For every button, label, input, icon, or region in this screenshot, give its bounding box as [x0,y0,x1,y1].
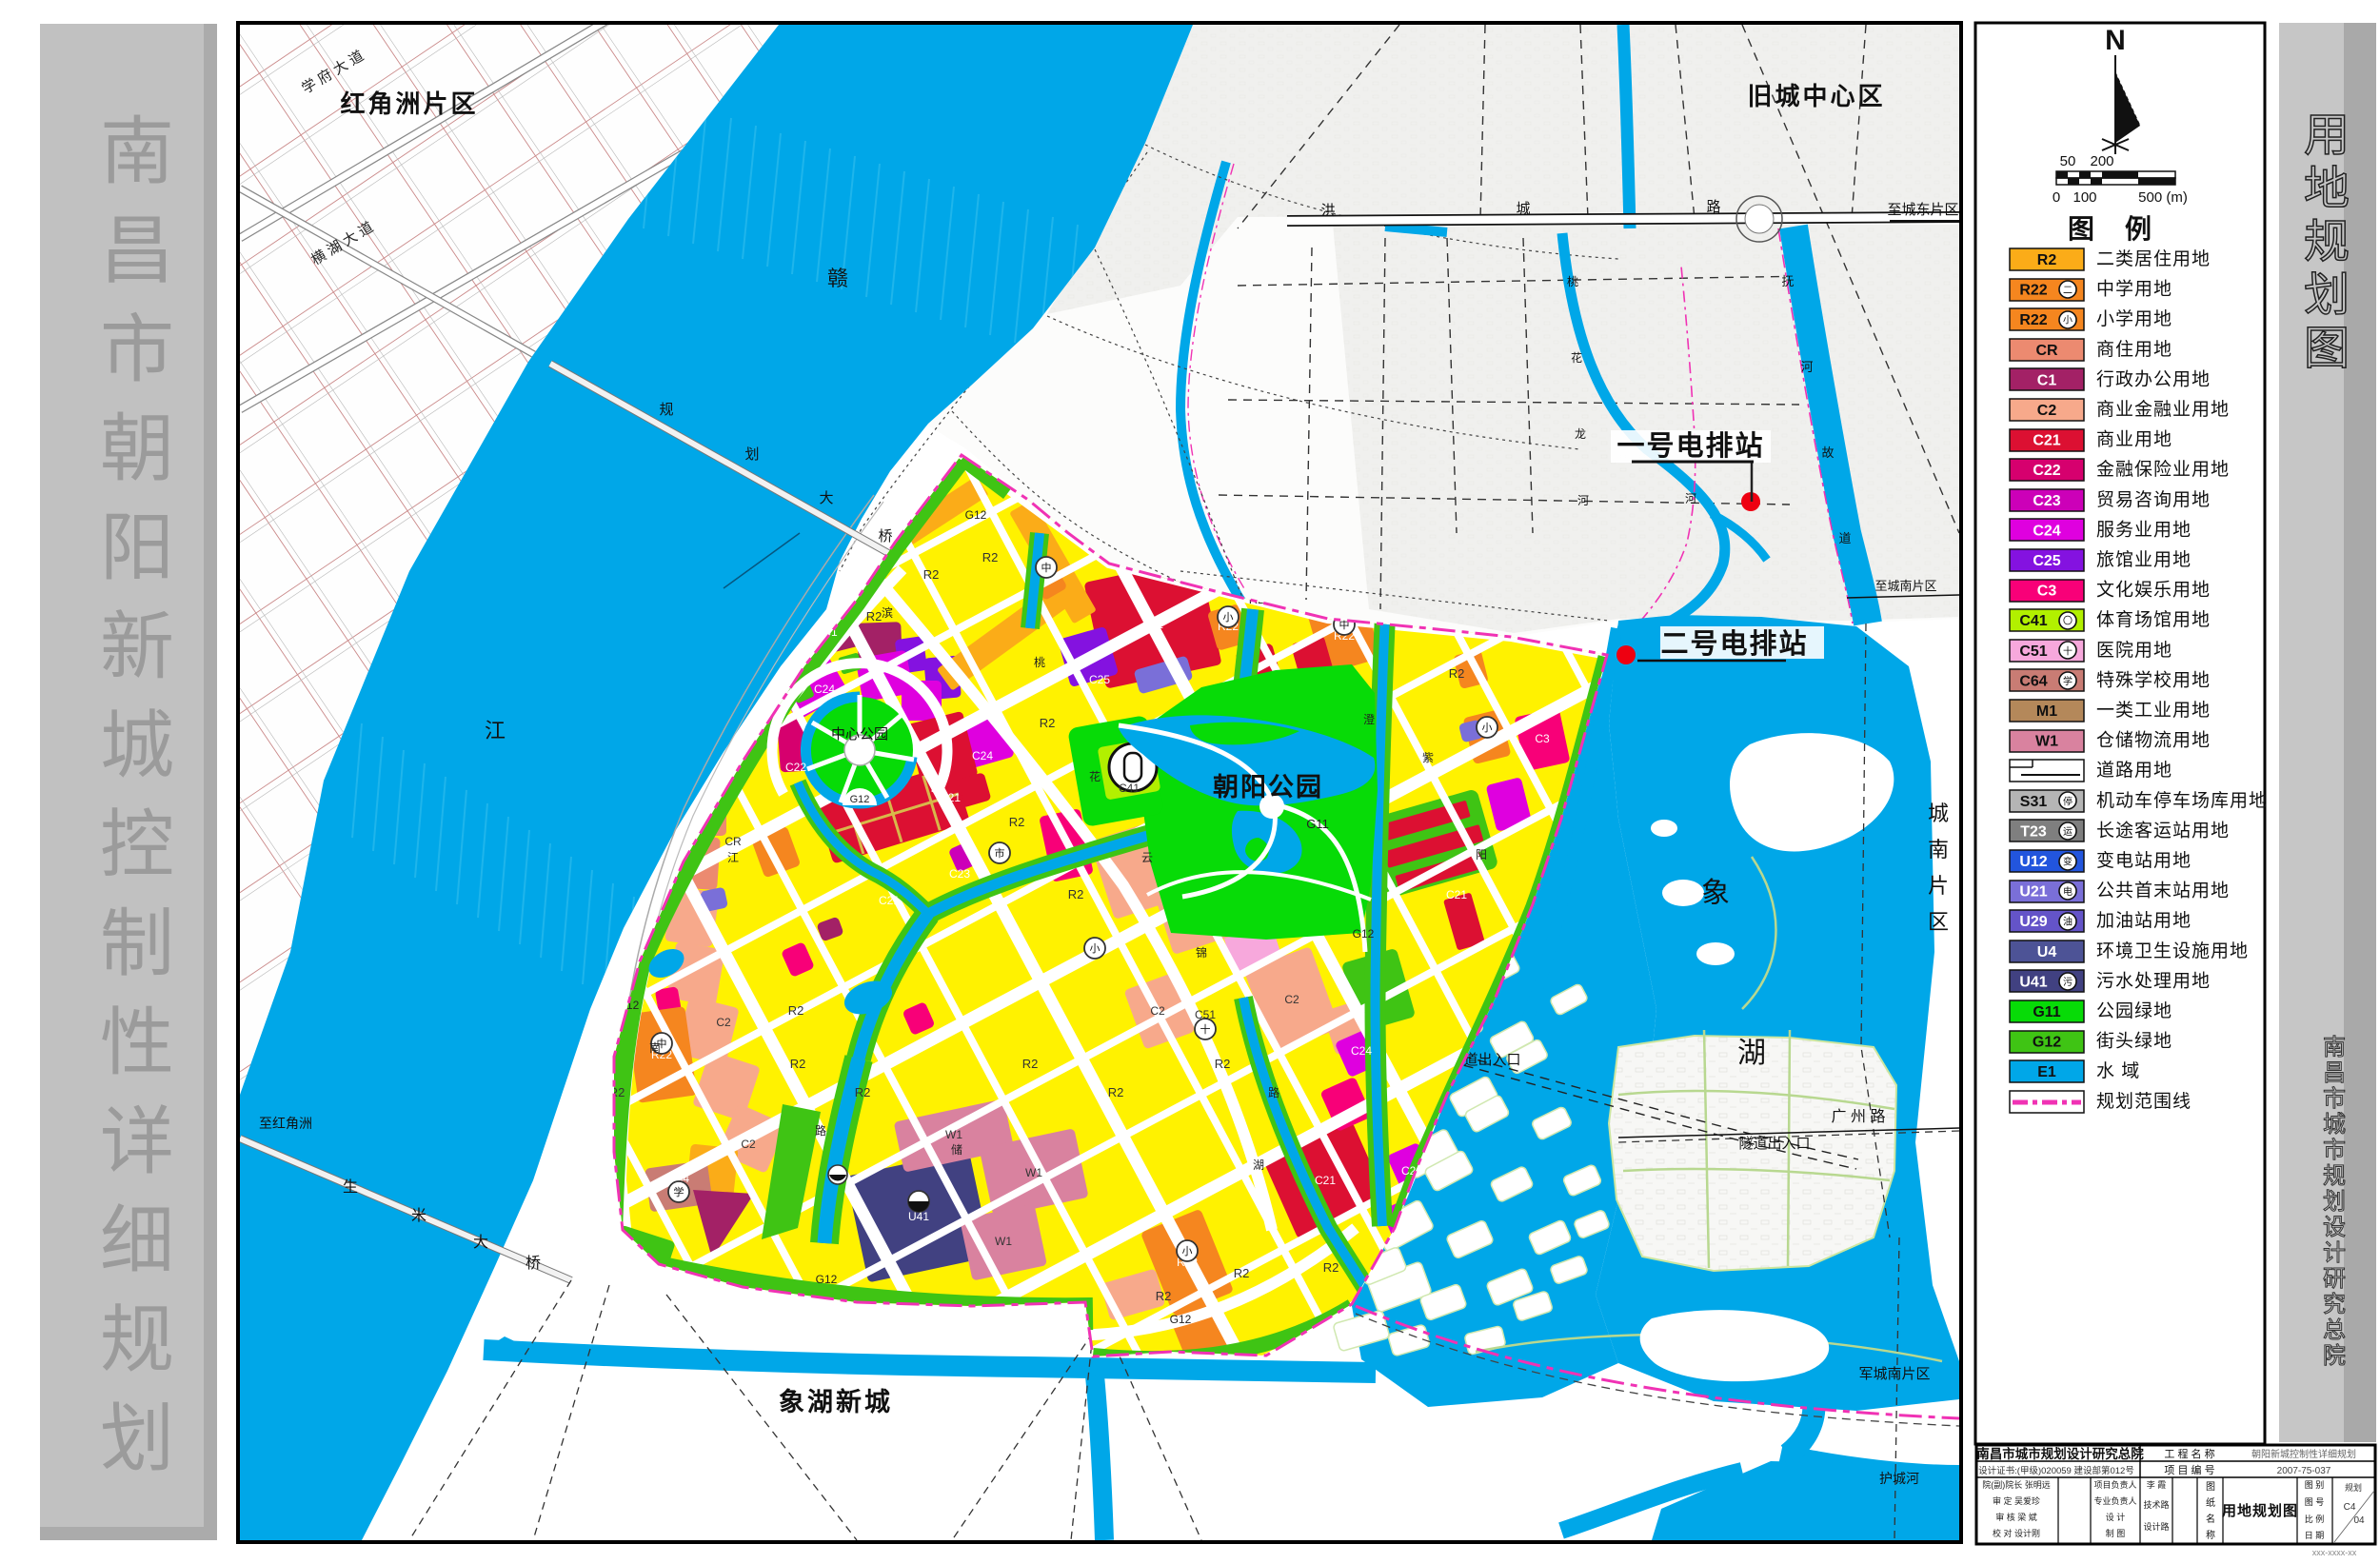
svg-text:滨: 滨 [882,605,893,620]
svg-text:专业负责人: 专业负责人 [2093,1495,2136,1506]
svg-text:W1: W1 [2035,734,2058,750]
svg-text:C41: C41 [1119,782,1140,795]
svg-text:污水处理用地: 污水处理用地 [2096,970,2211,991]
svg-text:院(副)院长 张明远: 院(副)院长 张明远 [1982,1479,2051,1490]
svg-text:澄: 澄 [1363,712,1375,726]
svg-text:大: 大 [473,1234,488,1251]
svg-text:R2: R2 [982,550,999,564]
svg-text:规划范围线: 规划范围线 [2096,1091,2192,1112]
svg-text:R22: R22 [2019,312,2047,328]
svg-text:G11: G11 [2033,1004,2060,1020]
svg-text:C64: C64 [2019,673,2047,689]
svg-text:规: 规 [100,1297,174,1381]
svg-text:C21: C21 [1315,1174,1336,1187]
svg-text:朝: 朝 [100,406,174,490]
svg-text:R2: R2 [1009,815,1025,829]
svg-text:片: 片 [1928,874,1949,898]
svg-text:南: 南 [2323,1035,2346,1060]
svg-text:性: 性 [100,1000,174,1084]
svg-text:电: 电 [2063,885,2073,898]
svg-text:红角洲片区: 红角洲片区 [340,89,478,118]
svg-text:故: 故 [1821,445,1834,460]
svg-text:路: 路 [1706,199,1720,215]
svg-text:校 对 设计刚: 校 对 设计刚 [1993,1528,2040,1538]
svg-text:二: 二 [2063,286,2073,296]
svg-text:2007-75-037: 2007-75-037 [2277,1466,2331,1476]
svg-text:C2: C2 [1150,1004,1165,1018]
svg-text:十: 十 [1200,1022,1211,1036]
svg-text:南: 南 [1928,838,1949,861]
svg-text:贸易咨询用地: 贸易咨询用地 [2096,489,2211,510]
svg-text:C1: C1 [2037,372,2057,388]
svg-text:C51: C51 [2019,643,2047,660]
svg-text:抚: 抚 [1781,274,1794,288]
svg-text:G12: G12 [1170,1313,1192,1326]
svg-text:行政办公用地: 行政办公用地 [2096,368,2211,389]
svg-text:图: 图 [2304,324,2350,374]
svg-text:桥: 桥 [878,528,892,544]
svg-text:规: 规 [2323,1163,2346,1189]
svg-text:划: 划 [2304,270,2350,321]
svg-text:04: 04 [2353,1515,2365,1526]
svg-text:G11: G11 [1306,817,1329,831]
svg-text:R22: R22 [2019,283,2047,299]
svg-text:M1: M1 [2036,703,2057,720]
svg-text:R2: R2 [1215,1057,1231,1071]
svg-text:C21: C21 [1142,618,1163,631]
svg-text:学: 学 [674,1185,684,1198]
svg-text:商业金融业用地: 商业金融业用地 [2096,399,2230,420]
svg-text:C22: C22 [785,761,806,774]
svg-text:规: 规 [659,402,673,418]
svg-text:隧道出入口: 隧道出入口 [1738,1136,1810,1152]
svg-text:锦: 锦 [1196,946,1207,960]
svg-text:湖: 湖 [1737,1038,1766,1069]
svg-text:制 图: 制 图 [2106,1528,2126,1538]
svg-text:护城河: 护城河 [1879,1471,1919,1486]
svg-text:U21: U21 [2019,884,2047,901]
svg-text:C2: C2 [1284,993,1299,1006]
svg-text:阳: 阳 [100,505,174,589]
svg-text:C24: C24 [1351,1044,1372,1058]
svg-text:C24: C24 [2033,523,2060,539]
svg-text:细: 细 [100,1198,174,1282]
svg-text:R2: R2 [1234,1266,1250,1280]
svg-text:二类居住用地: 二类居住用地 [2096,248,2211,269]
svg-text:桃: 桃 [1034,655,1045,669]
svg-text:服务业用地: 服务业用地 [2096,519,2192,540]
svg-text:设计路: 设计路 [2143,1521,2169,1532]
svg-text:U12: U12 [2019,854,2047,870]
svg-text:计: 计 [2323,1240,2346,1266]
svg-text:图 别: 图 别 [2305,1480,2325,1490]
svg-text:公园绿地: 公园绿地 [2096,1000,2172,1021]
svg-text:R2: R2 [866,609,883,624]
svg-text:设: 设 [2323,1215,2346,1240]
svg-text:十: 十 [2063,644,2073,657]
svg-text:龙: 龙 [1575,427,1586,441]
svg-text:市: 市 [2323,1086,2346,1112]
svg-text:一号电排站: 一号电排站 [1616,430,1764,462]
svg-text:U29: U29 [2019,914,2047,930]
svg-text:桥: 桥 [526,1255,541,1272]
svg-text:米: 米 [411,1207,426,1224]
svg-text:路: 路 [815,1123,826,1138]
svg-text:例: 例 [2125,214,2152,244]
svg-text:图: 图 [2068,214,2094,244]
svg-text:日 期: 日 期 [2305,1531,2325,1540]
svg-text:洪: 洪 [1320,203,1335,219]
svg-text:南昌市城市规划设计研究总院: 南昌市城市规划设计研究总院 [1976,1446,2144,1461]
svg-text:阳: 阳 [1476,848,1487,861]
svg-text:T23: T23 [2020,823,2047,840]
svg-text:C2: C2 [716,1016,731,1029]
svg-text:江: 江 [485,719,506,742]
svg-text:R2: R2 [2037,252,2057,268]
svg-text:0: 0 [2053,189,2060,206]
svg-text:R2: R2 [1323,1260,1339,1275]
svg-text:用地规划图: 用地规划图 [2222,1502,2298,1519]
svg-text:总: 总 [2323,1317,2346,1343]
svg-text:地: 地 [2304,164,2350,214]
svg-text:用: 用 [2304,110,2350,161]
svg-text:新: 新 [100,604,174,688]
svg-text:C23: C23 [949,867,970,881]
svg-text:象: 象 [1701,878,1730,909]
svg-text:研: 研 [2323,1266,2346,1292]
svg-text:〇: 〇 [2063,616,2073,627]
svg-text:道路用地: 道路用地 [2096,760,2172,781]
svg-text:旅馆业用地: 旅馆业用地 [2096,549,2192,570]
svg-text:C4: C4 [2344,1502,2356,1513]
svg-text:划: 划 [100,1396,174,1480]
svg-text:南: 南 [649,1040,661,1055]
svg-text:C25: C25 [2033,553,2060,569]
svg-text:变电站用地: 变电站用地 [2096,850,2192,871]
svg-text:赣: 赣 [827,267,848,290]
svg-text:城: 城 [2323,1112,2346,1138]
svg-text:C41: C41 [2019,613,2047,629]
svg-text:道: 道 [1838,531,1851,545]
svg-text:小: 小 [1482,722,1493,734]
svg-text:C21: C21 [1446,888,1467,901]
svg-text:至红角洲: 至红角洲 [259,1116,312,1131]
svg-text:图: 图 [2206,1481,2215,1493]
svg-text:军城南片区: 军城南片区 [1858,1366,1930,1382]
svg-text:R2: R2 [1449,666,1465,681]
svg-text:医院用地: 医院用地 [2096,640,2172,661]
svg-text:广 州 路: 广 州 路 [1832,1108,1886,1125]
svg-text:E1: E1 [2037,1064,2056,1080]
svg-text:生: 生 [343,1178,358,1196]
svg-text:城: 城 [1928,802,1949,825]
svg-text:划: 划 [2323,1189,2346,1215]
svg-text:R2: R2 [790,1057,806,1071]
svg-text:至城东片区: 至城东片区 [1887,202,1958,218]
svg-text:项 目 编 号: 项 目 编 号 [2164,1463,2214,1476]
svg-text:设 计: 设 计 [2106,1512,2126,1522]
svg-text:控: 控 [100,802,174,886]
svg-text:C2: C2 [2037,403,2057,419]
svg-text:R2: R2 [1040,716,1056,730]
svg-text:100: 100 [2073,189,2096,206]
svg-text:花: 花 [1571,350,1582,365]
svg-text:南: 南 [100,109,174,193]
svg-text:城: 城 [100,703,174,787]
svg-text:G12: G12 [965,508,987,522]
svg-text:小: 小 [1182,1245,1193,1257]
svg-text:审 定 吴爱珍: 审 定 吴爱珍 [1993,1495,2040,1506]
svg-text:G12: G12 [850,794,870,805]
svg-text:特殊学校用地: 特殊学校用地 [2096,669,2211,690]
svg-text:小: 小 [1223,611,1234,624]
svg-text:机动车停车场库用地: 机动车停车场库用地 [2096,790,2268,811]
svg-text:市: 市 [100,307,174,391]
svg-text:200: 200 [2090,153,2113,169]
svg-text:旧城中心区: 旧城中心区 [1747,82,1885,110]
svg-text:加油站用地: 加油站用地 [2096,910,2192,931]
svg-text:市: 市 [995,846,1005,860]
svg-text:C22: C22 [2033,463,2060,479]
svg-text:C2: C2 [741,1138,756,1151]
svg-text:U41: U41 [2019,974,2047,990]
svg-text:商业用地: 商业用地 [2096,429,2172,450]
svg-text:纸: 纸 [2206,1496,2215,1509]
svg-text:R2: R2 [1108,1085,1124,1099]
svg-text:污: 污 [2063,977,2073,988]
svg-text:C3: C3 [2037,584,2057,600]
svg-text:称: 称 [2206,1529,2215,1541]
svg-text:江: 江 [727,851,739,864]
svg-text:仓储物流用地: 仓储物流用地 [2096,730,2211,751]
svg-text:体育场馆用地: 体育场馆用地 [2096,609,2211,630]
svg-text:河: 河 [1577,494,1589,507]
svg-text:一类工业用地: 一类工业用地 [2096,700,2211,721]
svg-text:朝阳新城控制性详细规划: 朝阳新城控制性详细规划 [2251,1448,2356,1460]
svg-text:水 域: 水 域 [2096,1060,2140,1081]
svg-text:R2: R2 [788,1003,804,1018]
svg-text:河: 河 [1800,360,1813,374]
svg-text:C24: C24 [972,749,993,762]
svg-text:R2: R2 [855,1085,871,1099]
svg-text:图 号: 图 号 [2305,1497,2325,1507]
svg-text:R2: R2 [923,567,940,582]
svg-text:路: 路 [1268,1085,1279,1099]
svg-text:xxx-xxxx-xx: xxx-xxxx-xx [2312,1548,2357,1557]
svg-text:划: 划 [744,446,759,463]
svg-text:李 霞: 李 霞 [2147,1479,2167,1490]
svg-text:R2: R2 [1068,887,1084,901]
svg-text:昌: 昌 [2323,1060,2346,1086]
svg-text:油: 油 [2063,916,2073,928]
svg-text:CR: CR [2035,343,2058,359]
svg-text:大: 大 [819,490,833,506]
svg-text:C24: C24 [814,683,835,696]
svg-text:区: 区 [1928,910,1949,934]
svg-text:二号电排站: 二号电排站 [1660,628,1808,660]
svg-text:W1: W1 [995,1235,1012,1248]
svg-text:小学用地: 小学用地 [2096,308,2172,329]
svg-text:究: 究 [2323,1292,2346,1317]
svg-text:工 程 名 称: 工 程 名 称 [2164,1447,2214,1460]
svg-text:商住用地: 商住用地 [2096,339,2172,360]
svg-text:文化娱乐用地: 文化娱乐用地 [2096,580,2211,601]
svg-text:C21: C21 [2033,433,2060,449]
svg-text:C23: C23 [2033,493,2060,509]
svg-text:河: 河 [1685,492,1696,505]
svg-text:详: 详 [100,1099,174,1183]
svg-text:金融保险业用地: 金融保险业用地 [2096,459,2230,480]
svg-text:城: 城 [1516,201,1530,217]
svg-text:C3: C3 [1535,732,1550,745]
svg-text:G12: G12 [816,1273,838,1286]
svg-text:学: 学 [2063,675,2073,687]
svg-text:长途客运站用地: 长途客运站用地 [2096,820,2230,841]
svg-text:市: 市 [2323,1138,2346,1163]
svg-text:500 (m): 500 (m) [2138,189,2188,206]
svg-text:象湖新城: 象湖新城 [779,1387,893,1416]
svg-text:制: 制 [100,901,174,985]
svg-text:G12: G12 [2033,1035,2061,1051]
svg-text:名: 名 [2206,1513,2215,1525]
svg-text:C25: C25 [1089,673,1110,686]
svg-text:至城南片区: 至城南片区 [1874,579,1936,593]
svg-text:CR: CR [724,835,742,848]
svg-text:桃: 桃 [1567,274,1578,288]
svg-text:审 核 梁 斌: 审 核 梁 斌 [1995,1512,2037,1522]
svg-text:储: 储 [951,1142,962,1157]
svg-text:中学用地: 中学用地 [2096,279,2172,300]
svg-text:昌: 昌 [100,208,174,292]
svg-text:变: 变 [2063,856,2073,868]
svg-text:W1: W1 [1025,1166,1042,1179]
svg-text:设计证书:(甲级)020059 建设部第012号: 设计证书:(甲级)020059 建设部第012号 [1978,1465,2134,1476]
svg-text:朝阳公园: 朝阳公园 [1213,773,1323,802]
svg-text:湖: 湖 [1253,1158,1264,1172]
svg-text:中心公园: 中心公园 [831,726,888,742]
svg-text:规划: 规划 [2345,1482,2362,1493]
svg-text:技术路: 技术路 [2143,1499,2169,1510]
svg-text:C21: C21 [879,894,900,907]
svg-text:院: 院 [2323,1343,2346,1369]
svg-text:运: 运 [2063,826,2073,838]
svg-text:S31: S31 [2020,794,2048,810]
svg-text:R2: R2 [1156,1289,1172,1303]
svg-text:项目负责人: 项目负责人 [2093,1479,2136,1490]
svg-text:紫: 紫 [1422,751,1434,764]
svg-text:停: 停 [2063,795,2073,807]
svg-text:小: 小 [2063,315,2073,327]
svg-text:公共首末站用地: 公共首末站用地 [2096,881,2230,901]
svg-text:街头绿地: 街头绿地 [2096,1031,2172,1052]
svg-text:R2: R2 [1022,1057,1039,1071]
svg-text:50: 50 [2060,153,2076,169]
svg-text:小: 小 [1090,942,1101,955]
svg-text:环境卫生设施用地: 环境卫生设施用地 [2096,940,2249,961]
svg-text:W1: W1 [945,1128,962,1141]
svg-text:比 例: 比 例 [2305,1514,2325,1524]
svg-text:中: 中 [1041,562,1052,574]
svg-text:U4: U4 [2037,944,2057,960]
svg-text:规: 规 [2304,217,2350,267]
svg-text:G12: G12 [1353,927,1375,940]
svg-text:N: N [2105,25,2126,56]
svg-text:C21: C21 [940,791,961,804]
svg-text:花: 花 [1089,769,1101,783]
svg-text:云: 云 [1141,851,1153,864]
